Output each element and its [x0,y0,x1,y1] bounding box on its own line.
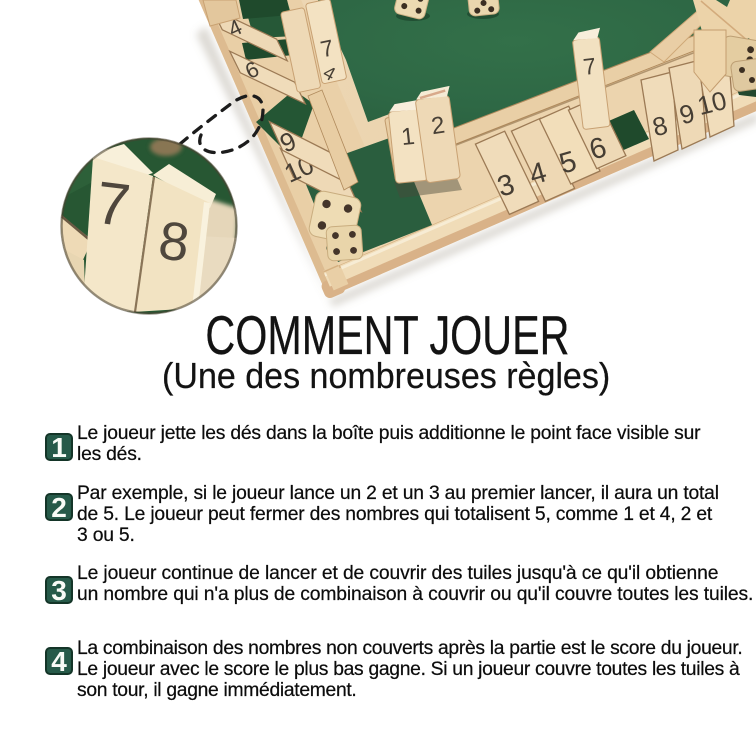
svg-text:1: 1 [400,123,416,151]
